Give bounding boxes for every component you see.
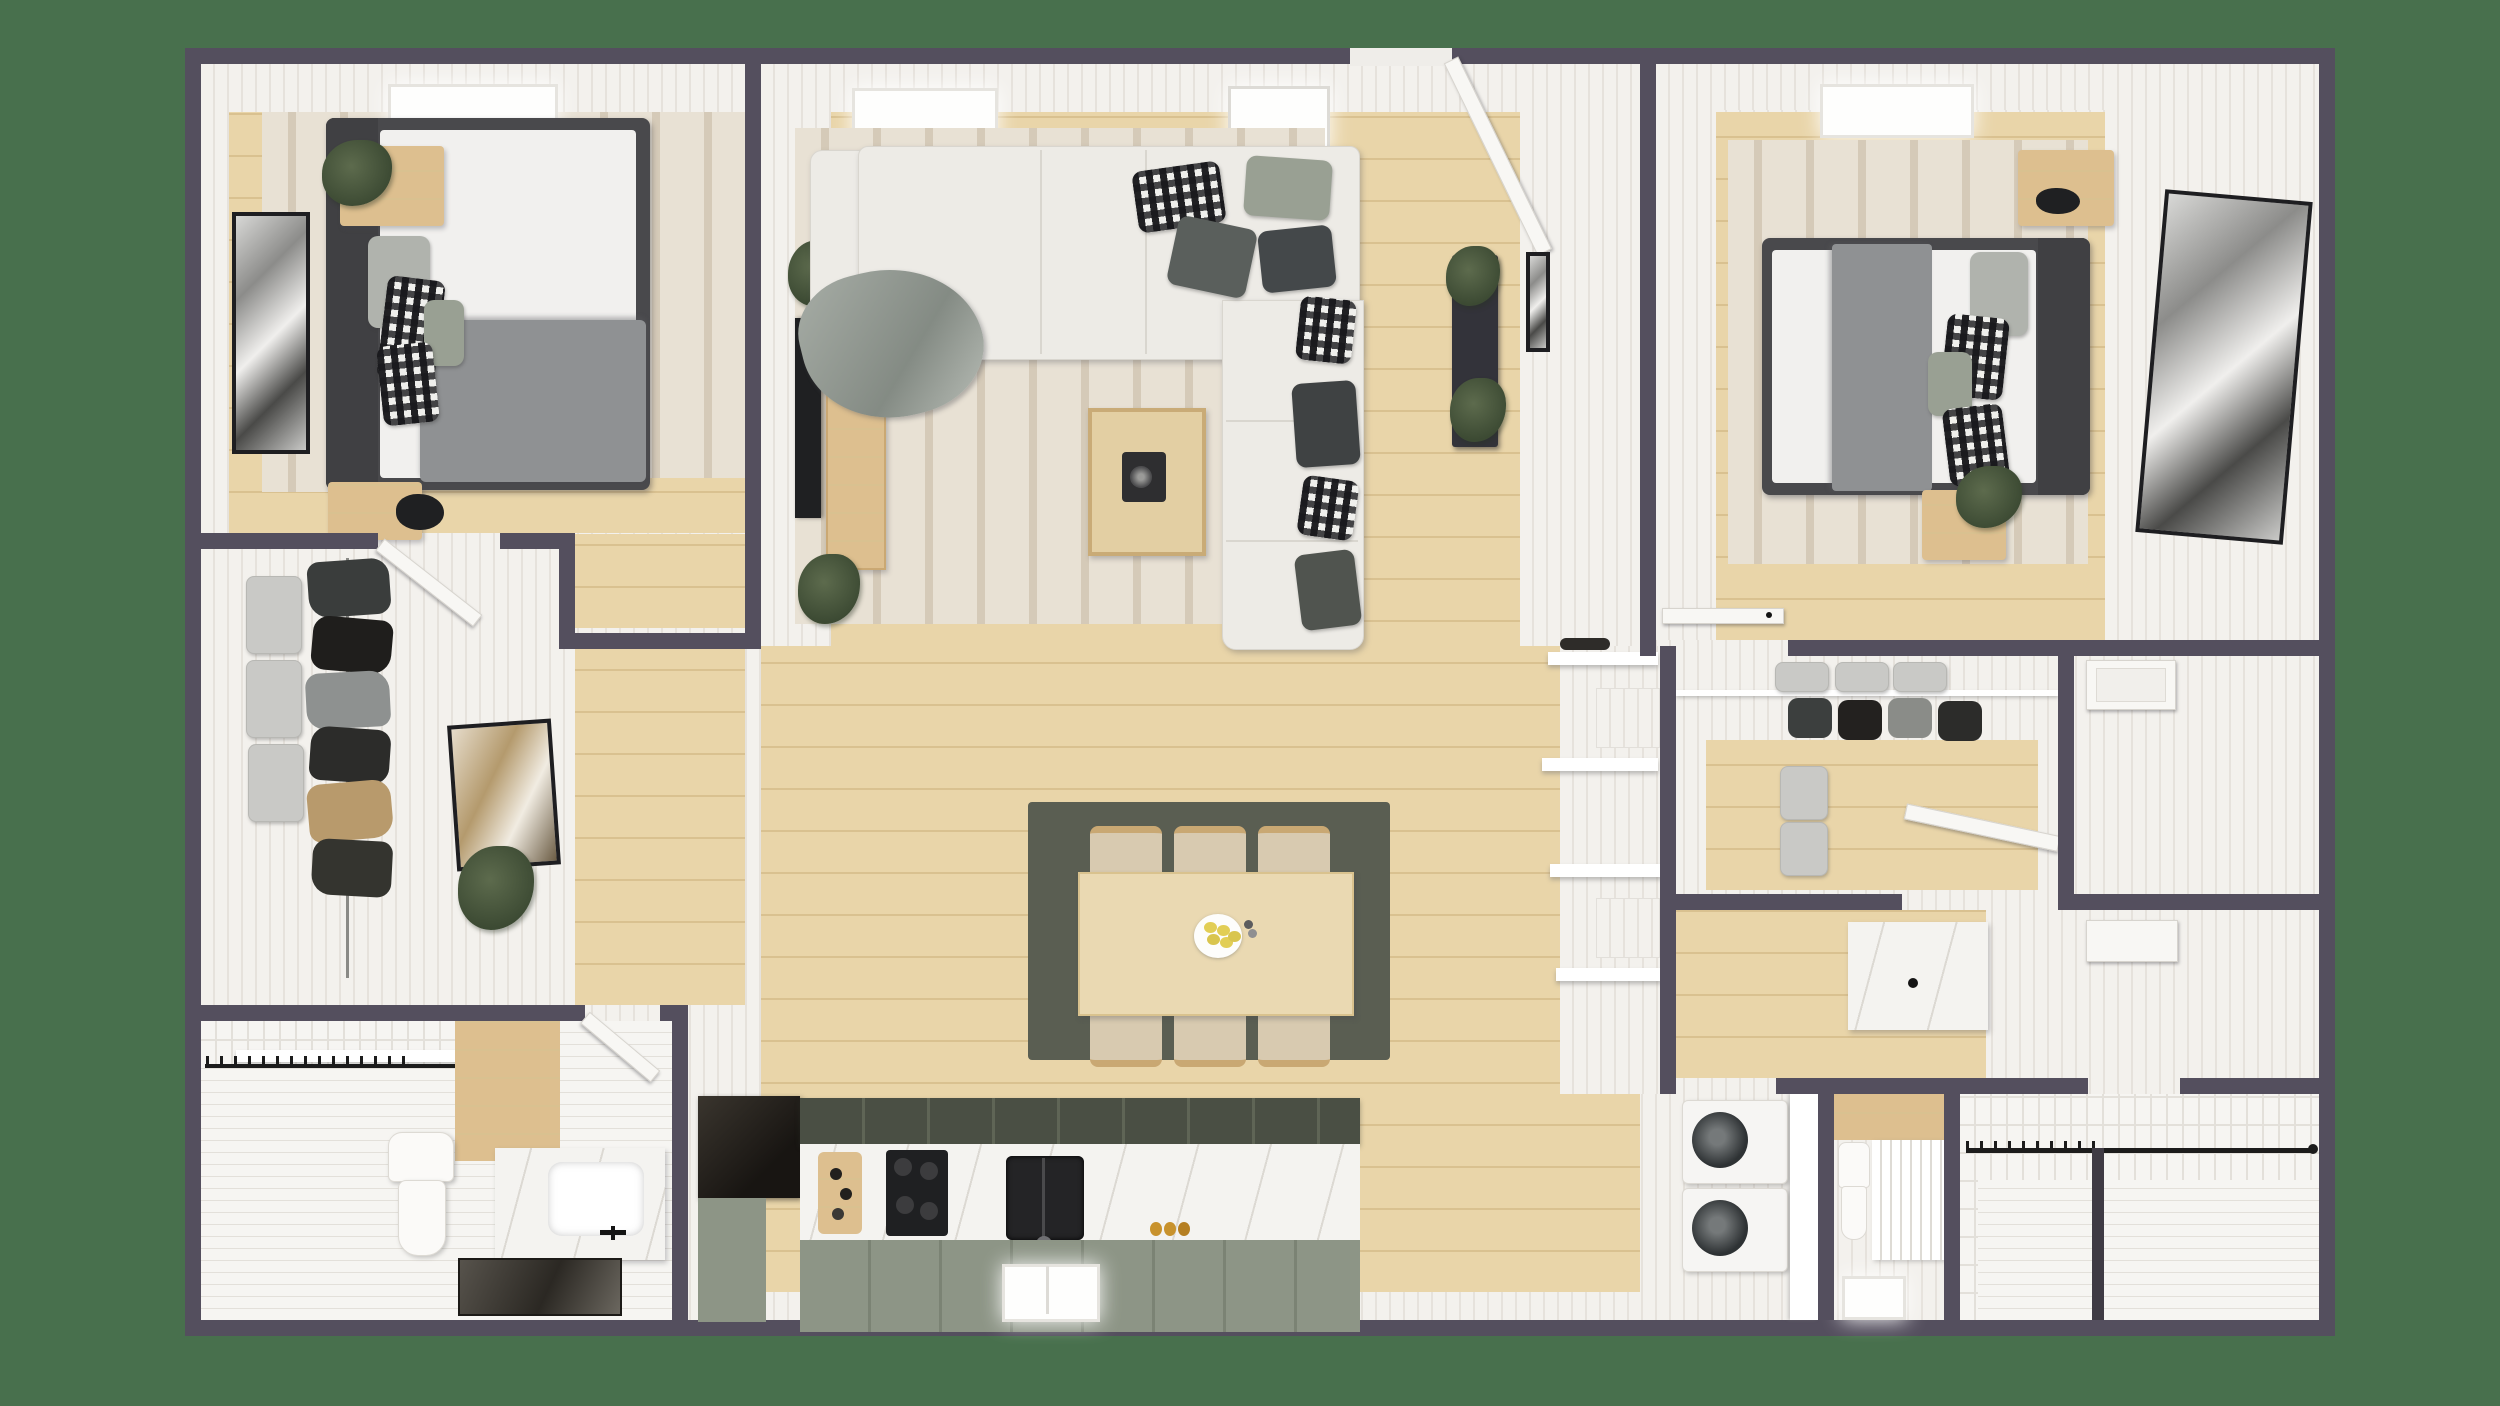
closet-left-clothes-1	[306, 557, 392, 619]
sofa-pillow-dark-4	[1294, 549, 1363, 632]
floor-plan-canvas	[0, 0, 2500, 1406]
wc-window	[1842, 1276, 1906, 1320]
sofa-pillow-checkered-2	[1295, 295, 1357, 365]
hall-cabinet-1	[1596, 688, 1660, 748]
wall-midbath-south-b	[2180, 1078, 2319, 1094]
wall-closetright-south-b	[2058, 894, 2319, 910]
living-east-wall-face	[1520, 64, 1640, 646]
vanity-left-sink	[548, 1162, 644, 1236]
fridge-top	[698, 1096, 800, 1198]
bathroom-left-curtain-rod	[205, 1064, 461, 1068]
closet-right-box-1	[1775, 662, 1829, 692]
wall-bath-kitchen	[672, 1021, 688, 1320]
wc-louver-screen	[1872, 1140, 1944, 1260]
wall-closet-bath-a	[185, 1005, 585, 1021]
hall-shelf-3	[1550, 864, 1662, 877]
hall-cabinet-2	[1596, 898, 1660, 958]
sofa-pillow-dark-2	[1257, 224, 1337, 293]
kitchen-window-sash	[1046, 1266, 1049, 1314]
living-small-art	[1526, 252, 1550, 352]
closet-right-box-3	[1893, 662, 1947, 692]
linen-door-inset	[2096, 668, 2166, 702]
sofa-seam-1	[1040, 150, 1042, 354]
shower-partition	[2092, 1148, 2104, 1320]
closet-right-floor	[1706, 740, 2038, 890]
bedroom-right-wall-art	[2135, 189, 2312, 545]
shower-curtain-rod	[1966, 1148, 2314, 1153]
closet-left-clothes-4	[308, 725, 392, 784]
shower-rod-end	[2308, 1144, 2318, 1154]
wall-bedroomleft-closet-b	[500, 533, 575, 549]
closet-right-box-2	[1835, 662, 1889, 692]
kitchen-tall-cabinet	[698, 1198, 766, 1322]
wall-bedroomleft-living	[745, 48, 761, 646]
wall-midbath-south-a	[1776, 1078, 2088, 1094]
bedroom-left-wall-art	[232, 212, 310, 454]
closet-left-clothes-5	[306, 778, 395, 843]
salt-pepper	[1244, 920, 1253, 929]
bedroom-right-west-face	[1656, 64, 1716, 640]
sofa-pillow-checkered-3	[1296, 474, 1360, 541]
sink-divider	[1042, 1158, 1045, 1238]
wc-toilet-tank	[1838, 1142, 1870, 1188]
bed-right-headboard	[2038, 238, 2090, 495]
closet-right-box-5	[1780, 822, 1828, 876]
record-player-disc	[1130, 466, 1152, 488]
shower-floor	[1978, 1180, 2319, 1320]
closet-left-box-3	[248, 744, 304, 822]
lemons	[1204, 922, 1217, 933]
kitchen-window	[1002, 1264, 1100, 1322]
entry-threshold	[1350, 48, 1452, 66]
wall-nook-south-jog	[559, 633, 761, 649]
cutting-board	[818, 1152, 862, 1234]
lamp-nightstand-left	[396, 494, 444, 530]
wall-wc-shower	[1944, 1094, 1960, 1320]
kitchen-sink	[1006, 1156, 1084, 1240]
closet-left-box-2	[246, 660, 302, 738]
bathroom-right-door-frame	[2086, 920, 2178, 962]
wall-hall-closetright	[1660, 646, 1676, 1094]
bed-left-pillow-checkered-2	[376, 341, 440, 426]
bathroom-right-vanity	[1848, 922, 1988, 1030]
wall-bedroomright-south	[1788, 640, 2319, 656]
closet-left-clothes-2	[310, 615, 394, 676]
wall-bedroomleft-closet-a	[185, 533, 378, 549]
closet-left-clothes-3	[305, 670, 392, 730]
fruit-plate	[1194, 914, 1242, 958]
wall-closet-bath-b	[660, 1005, 688, 1021]
nightstand-right-north	[2018, 150, 2114, 226]
kitchen-upper-cabinets	[800, 1098, 1360, 1144]
closet-left-box-1	[246, 576, 302, 654]
bed-right-blanket	[1832, 244, 1932, 491]
laundry-counter	[1790, 1094, 1818, 1320]
wall-living-bedroomright	[1640, 48, 1656, 656]
closet-right-box-4	[1780, 766, 1828, 820]
wc-wood-wall	[1834, 1094, 1944, 1140]
sofa-pillow-dark-3	[1291, 380, 1361, 468]
toilet-left-tank	[388, 1132, 454, 1182]
hall-shoes	[1560, 638, 1610, 650]
washer-lid	[1692, 1112, 1748, 1168]
hall-shelf-2	[1542, 758, 1658, 771]
wall-closetright-linen	[2058, 656, 2074, 894]
hall-shelf-4	[1556, 968, 1662, 981]
wall-laundry-wc	[1818, 1094, 1834, 1320]
dryer-lid	[1692, 1200, 1748, 1256]
bathroom-right-faucet	[1908, 978, 1918, 988]
bathroom-left-mirror	[458, 1258, 622, 1316]
bathroom-left-wood-wall	[455, 1021, 560, 1161]
vanity-left-faucet-stem	[611, 1226, 615, 1240]
wall-closetright-south-a	[1676, 894, 1902, 910]
hall-nook-floor	[575, 534, 745, 628]
toilet-left-bowl	[398, 1180, 446, 1256]
hall-nook-floor-2	[575, 649, 745, 1005]
closet-right-clothes	[1788, 698, 1832, 738]
cooktop-burners	[894, 1158, 912, 1176]
sconce-right	[2036, 188, 2080, 214]
ceiling-light-bedroom-right	[1820, 84, 1974, 138]
amber-bottles	[1150, 1222, 1162, 1236]
bedroom-right-door-handle	[1766, 612, 1772, 618]
wc-toilet-bowl	[1841, 1186, 1867, 1240]
sofa-seam-4	[1226, 540, 1358, 542]
sofa-pillow-sage	[1243, 155, 1333, 221]
board-utensils	[830, 1168, 842, 1180]
closet-left-clothes-6	[311, 838, 394, 898]
